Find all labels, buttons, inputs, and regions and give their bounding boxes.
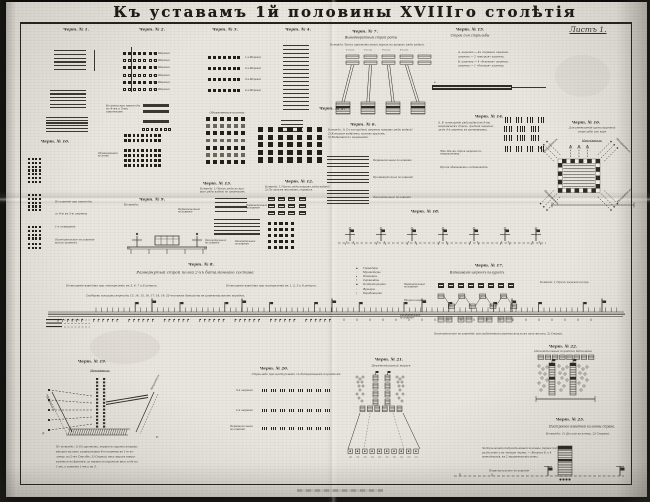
- formation-bar-row: [283, 81, 309, 82]
- soldier-grid-cell: [206, 160, 210, 164]
- soldier-grid-cell: [234, 117, 238, 121]
- soldier-grid-cell: [241, 146, 245, 150]
- firing-mark: [302, 427, 303, 430]
- formation-bar-row: [283, 73, 309, 74]
- figure-heading: Черт. № 8.: [188, 262, 214, 266]
- soldier-grid-cell: [32, 173, 34, 175]
- platoon-block: [438, 283, 444, 288]
- soldier-grid-cell: [158, 154, 161, 157]
- formation-bar-row: [283, 77, 309, 78]
- soldier-grid-cell: [124, 149, 127, 152]
- bracket-line: [131, 47, 132, 92]
- soldier-grid-cell: [158, 159, 161, 162]
- firing-mark: [275, 427, 276, 430]
- caption-text: Обыкновенная колонна: [98, 152, 122, 158]
- svg-text:Непріятель: Непріятель: [543, 188, 560, 205]
- figure-heading: Черт. № 3.: [212, 27, 238, 31]
- soldier-square: [233, 67, 236, 70]
- platoon-block: [468, 283, 474, 288]
- file-stroke: [521, 146, 522, 152]
- soldier-grid-cell: [274, 234, 277, 237]
- soldier-square: [133, 66, 136, 69]
- soldier-grid-cell: [158, 134, 161, 137]
- soldier-grid-cell: [287, 142, 292, 147]
- caption-line: ваго ряды вздвой по шеренгамъ.: [200, 190, 245, 193]
- figure-heading: Черт. № 22.: [549, 344, 578, 348]
- firing-mark: [273, 427, 274, 430]
- soldier-grid-cell: [128, 164, 131, 167]
- soldier-square: [143, 52, 146, 55]
- firing-mark: [266, 409, 267, 412]
- caption-text-block: Команда: 1) Съ площадной шеренги направо…: [328, 128, 413, 139]
- caption-text: Промежуточное положеніе: [373, 176, 413, 179]
- platoon-block: [268, 211, 275, 215]
- soldier-square: [208, 56, 211, 59]
- soldier-grid-cell: [28, 247, 30, 249]
- soldier-grid-cell: [39, 198, 41, 200]
- trees-diagram: [486, 354, 604, 404]
- svg-text:Д.: Д.: [41, 431, 45, 435]
- soldier-grid-cell: [28, 173, 30, 175]
- soldier-grid-cell: [28, 181, 30, 183]
- soldier-grid-cell: [279, 222, 282, 225]
- soldier-grid-cell: [28, 198, 30, 200]
- soldier-grid-cell: [39, 230, 41, 232]
- caption-text: Развернутый строй полка 2-хъ баталіоннаг…: [136, 270, 253, 274]
- solid-bar: [143, 104, 169, 107]
- soldier-grid-cell: [39, 181, 41, 183]
- soldier-grid-cell: [234, 153, 238, 157]
- caption-text: Непріятель: [90, 369, 109, 372]
- caption-text: 1-я Шеренга: [153, 52, 170, 55]
- soldier-square: [218, 67, 221, 70]
- firing-mark: [273, 389, 274, 392]
- soldier-grid-cell: [141, 134, 144, 137]
- soldier-grid-cell: [268, 135, 273, 140]
- soldier-grid-cell: [268, 127, 273, 132]
- soldier-grid-cell: [268, 150, 273, 155]
- firing-mark: [271, 389, 272, 392]
- soldier-grid-cell: [258, 157, 263, 162]
- soldier-grid-cell: [278, 142, 283, 147]
- soldier-grid-cell: [220, 146, 224, 150]
- file-stroke: [535, 126, 536, 132]
- formation-bar-row: [215, 211, 247, 212]
- caption-text: Окончательное положеніе: [400, 314, 434, 319]
- soldier-square: [128, 52, 131, 55]
- soldier-grid-cell: [154, 154, 157, 157]
- soldier-square: [228, 56, 231, 59]
- platoon-block: [498, 283, 504, 288]
- soldier-square: [213, 67, 216, 70]
- soldier-grid-cell: [35, 162, 37, 164]
- soldier-grid-cell: [32, 237, 34, 239]
- soldier-grid-cell: [128, 139, 131, 142]
- figure-heading: Черт. № 16.: [572, 120, 601, 124]
- caption-text: 3-я Шеренга: [245, 78, 261, 81]
- soldier-grid-cell: [141, 139, 144, 142]
- soldier-grid-cell: [227, 131, 231, 135]
- soldier-square: [143, 59, 146, 62]
- firing-mark: [275, 409, 276, 412]
- caption-text: Эти №№-ми строя шеренги по старшинству.: [440, 150, 490, 156]
- soldier-grid-cell: [297, 135, 302, 140]
- soldier-grid-cell: [287, 157, 292, 162]
- firing-mark: [293, 409, 294, 412]
- soldier-grid-cell: [28, 169, 30, 171]
- file-stroke: [531, 135, 532, 141]
- soldier-grid-cell: [39, 243, 41, 245]
- file-stroke: [538, 126, 539, 132]
- firing-mark: [298, 409, 299, 412]
- soldier-grid-cell: [146, 134, 149, 137]
- soldier-square: [142, 128, 145, 131]
- caption-text: Выводворотный строй роты: [345, 36, 397, 40]
- soldier-square: [149, 59, 152, 62]
- soldier-grid-cell: [206, 124, 210, 128]
- soldier-grid-cell: [35, 177, 37, 179]
- caption-text: 5-я Шеренга: [153, 81, 170, 84]
- file-stroke: [510, 117, 511, 123]
- firing-mark: [282, 389, 283, 392]
- figure-heading: Черт. № 18.: [411, 209, 440, 213]
- caption-text: Окончательный порядокъ баталіона: [534, 350, 592, 353]
- soldier-square: [213, 78, 216, 81]
- file-stroke: [522, 135, 523, 141]
- firing-mark: [284, 409, 285, 412]
- formation-bar-row: [283, 101, 309, 102]
- caption-text: Команда: Чрезъ церемоніальный маршъ на п…: [330, 43, 425, 46]
- soldier-grid-cell: [297, 127, 302, 132]
- soldier-grid-cell: [287, 127, 292, 132]
- soldier-square: [143, 81, 146, 84]
- formation-bar-row: [214, 219, 260, 220]
- crossline-diagram: [338, 226, 546, 252]
- firing-mark: [266, 389, 267, 392]
- printer-imprint: [297, 489, 383, 492]
- caption-text-block: А. Б. помѣщеніе ряда вздвой въ 6-тишерен…: [438, 121, 494, 131]
- soldier-grid-cell: [28, 177, 30, 179]
- caption-text-block: Команда: 1) Чрезъ ряды на пра-ваго ряды …: [200, 187, 245, 194]
- band-diagram: [46, 298, 628, 332]
- soldier-square: [237, 67, 240, 70]
- soldier-grid-cell: [146, 149, 149, 152]
- firing-mark: [298, 389, 299, 392]
- soldier-grid-cell: [128, 154, 131, 157]
- formation-bar-row: [327, 159, 369, 160]
- bracket-line: [94, 50, 95, 71]
- file-stroke: [532, 146, 533, 152]
- soldier-square: [160, 128, 163, 131]
- soldier-grid-cell: [28, 234, 30, 236]
- soldier-grid-cell: [234, 160, 238, 164]
- firing-mark: [291, 427, 292, 430]
- soldier-grid-cell: [35, 205, 37, 207]
- formation-bar-row: [283, 65, 309, 66]
- figure-heading: Черт. № 2.: [139, 27, 165, 31]
- soldier-square: [128, 66, 131, 69]
- caption-text: 2-я шеренга: [236, 409, 253, 412]
- soldier-grid-cell: [278, 135, 283, 140]
- soldier-grid-cell: [35, 226, 37, 228]
- soldier-square: [151, 128, 154, 131]
- soldier-grid-cell: [28, 205, 30, 207]
- soldier-grid-cell: [274, 228, 277, 231]
- soldier-grid-cell: [307, 157, 312, 162]
- soldier-grid-cell: [285, 234, 288, 237]
- caption-text: а.: [434, 81, 436, 84]
- soldier-grid-cell: [307, 142, 312, 147]
- formation-bar-row: [54, 61, 86, 62]
- soldier-grid-cell: [268, 157, 273, 162]
- soldier-grid-cell: [154, 159, 157, 162]
- formation-bar-row: [214, 233, 260, 234]
- soldier-square: [213, 56, 216, 59]
- soldier-grid-cell: [317, 142, 322, 147]
- soldier-grid-cell: [32, 177, 34, 179]
- soldier-grid-cell: [133, 134, 136, 137]
- soldier-square: [133, 52, 136, 55]
- file-stroke: [506, 126, 507, 132]
- soldier-square: [168, 128, 171, 131]
- soldier-grid-cell: [158, 164, 161, 167]
- formation-bar-row: [283, 89, 309, 90]
- firing-mark: [316, 427, 317, 430]
- soldier-grid-cell: [35, 181, 37, 183]
- formation-bar-row: [54, 65, 86, 66]
- firing-mark: [280, 409, 281, 412]
- soldier-grid-cell: [39, 234, 41, 236]
- soldier-grid-cell: [291, 246, 294, 249]
- bridge-diagram: [127, 228, 207, 255]
- soldier-square: [133, 88, 136, 91]
- platoon-block: [288, 211, 295, 215]
- firing-mark: [262, 427, 263, 430]
- figure-heading: Черт. № 19.: [78, 359, 107, 363]
- formation-bar-row: [327, 190, 369, 191]
- soldier-grid-cell: [39, 177, 41, 179]
- file-stroke: [518, 146, 519, 152]
- soldier-square: [218, 89, 221, 92]
- soldier-grid-cell: [137, 164, 140, 167]
- formation-bar-row: [283, 105, 309, 106]
- formation-bar-row: [46, 125, 88, 126]
- soldier-grid-cell: [220, 131, 224, 135]
- platoon-block: [488, 283, 494, 288]
- firing-mark: [300, 409, 301, 412]
- soldier-grid-cell: [291, 234, 294, 237]
- soldier-grid-cell: [307, 127, 312, 132]
- soldier-square: [233, 89, 236, 92]
- figure-heading: Черт. № 20.: [260, 366, 289, 370]
- soldier-grid-cell: [227, 139, 231, 143]
- firing-mark: [280, 427, 281, 430]
- file-stroke: [507, 146, 508, 152]
- soldier-grid-cell: [32, 202, 34, 204]
- soldier-grid-cell: [35, 173, 37, 175]
- caption-text: 1-я Шеренга: [245, 56, 261, 59]
- soldier-grid-cell: [32, 162, 34, 164]
- formation-bar-row: [283, 69, 309, 70]
- firing-mark: [289, 409, 290, 412]
- legend-symbol: |: [356, 292, 357, 295]
- svg-text:Непріятель: Непріятель: [615, 187, 632, 204]
- soldier-grid-cell: [268, 246, 271, 249]
- file-stroke: [535, 135, 536, 141]
- soldier-grid-cell: [39, 162, 41, 164]
- firing-mark: [318, 409, 319, 412]
- firing-mark: [325, 409, 326, 412]
- soldier-grid-cell: [35, 234, 37, 236]
- file-stroke: [507, 117, 508, 123]
- kare-diagram: НепріятельНепріятельНепріятельНепріятель: [544, 131, 644, 209]
- soldier-grid-cell: [220, 153, 224, 157]
- svg-text:Е.: Е.: [155, 435, 159, 439]
- legend-label: Фурьеры: [363, 288, 375, 291]
- soldier-grid-cell: [39, 202, 41, 204]
- soldier-grid-cell: [213, 153, 217, 157]
- firing-mark: [300, 427, 301, 430]
- soldier-square: [149, 74, 152, 77]
- file-stroke: [533, 126, 534, 132]
- firing-mark: [262, 409, 263, 412]
- firing-mark: [329, 409, 330, 412]
- soldier-grid-cell: [258, 127, 263, 132]
- soldier-square: [208, 78, 211, 81]
- soldier-grid-cell: [35, 169, 37, 171]
- firing-mark: [280, 389, 281, 392]
- file-stroke: [521, 117, 522, 123]
- legend-symbol: ◦: [356, 271, 357, 274]
- soldier-grid-cell: [146, 159, 149, 162]
- firing-mark: [309, 409, 310, 412]
- figure-heading: Черт. № 17.: [475, 263, 504, 267]
- file-stroke: [543, 117, 544, 123]
- soldier-grid-cell: [158, 149, 161, 152]
- caption-text: Окончательное положеніе): всѣ вздвоенныя…: [434, 332, 563, 335]
- soldier-grid-cell: [206, 131, 210, 135]
- firing-mark: [291, 389, 292, 392]
- firing-mark: [262, 389, 263, 392]
- formation-bar-row: [50, 104, 86, 105]
- soldier-grid-cell: [154, 139, 157, 142]
- file-stroke: [509, 135, 510, 141]
- caption-text: 4-й взв.: [400, 49, 409, 51]
- formation-bar-row: [215, 202, 247, 203]
- soldier-square: [138, 81, 141, 84]
- caption-text: Скобками показаны переходы 13, 14, 15, 1…: [86, 294, 245, 297]
- caption-text: Первоначальное положеніе: [373, 159, 412, 162]
- formation-bar-row: [214, 226, 260, 227]
- formation-bar-row: [46, 122, 88, 123]
- firing-mark: [266, 427, 267, 430]
- soldier-grid-cell: [32, 226, 34, 228]
- soldier-square: [123, 66, 126, 69]
- soldier-grid-cell: [227, 160, 231, 164]
- soldier-grid-cell: [32, 169, 34, 171]
- soldier-square: [138, 66, 141, 69]
- firing-mark: [320, 389, 321, 392]
- firing-mark: [309, 427, 310, 430]
- soldier-grid-cell: [158, 139, 161, 142]
- formation-bar-row: [327, 179, 369, 180]
- formation-bar-row: [327, 197, 369, 198]
- file-stroke: [538, 135, 539, 141]
- caption-text: Прочія обыкновенно составляютъ.: [440, 166, 490, 169]
- formation-bar-row: [54, 58, 86, 59]
- soldier-grid-cell: [258, 142, 263, 147]
- firing-mark: [271, 427, 272, 430]
- file-stroke: [511, 126, 512, 132]
- firing-mark: [316, 409, 317, 412]
- figure-heading: Черт. № 12.: [285, 179, 314, 183]
- soldier-grid-cell: [154, 164, 157, 167]
- svg-text:Непріятель: Непріятель: [149, 373, 161, 391]
- formation-bar-row: [281, 124, 303, 125]
- formation-bar-row: [281, 120, 303, 121]
- soldier-square: [143, 66, 146, 69]
- soldier-grid-cell: [279, 228, 282, 231]
- firing-mark: [289, 427, 290, 430]
- soldier-grid-cell: [268, 240, 271, 243]
- firing-mark: [284, 427, 285, 430]
- legend-symbol: †: [356, 279, 357, 282]
- legend-label: Подпрапорщики: [363, 283, 386, 286]
- formation-bar-row: [46, 117, 88, 118]
- firing-mark: [275, 389, 276, 392]
- caption-text-block: А, шеренги — въ «первыя» шеренги,шеренги…: [458, 50, 509, 68]
- formation-bar-row: [327, 163, 369, 164]
- soldier-grid-cell: [141, 154, 144, 157]
- formation-bar-row: [283, 57, 309, 58]
- caption-text: Помѣщеніе взводовъ при наступленіи въ 1,…: [226, 284, 317, 287]
- firing-mark: [264, 427, 265, 430]
- soldier-grid-cell: [137, 159, 140, 162]
- soldier-square: [228, 89, 231, 92]
- soldier-square: [233, 56, 236, 59]
- soldier-grid-cell: [133, 154, 136, 157]
- soldier-square: [149, 52, 152, 55]
- file-stroke: [533, 135, 534, 141]
- soldier-grid-cell: [258, 150, 263, 155]
- firing-mark: [284, 389, 285, 392]
- soldier-square: [138, 74, 141, 77]
- soldier-grid-cell: [307, 150, 312, 155]
- soldier-grid-cell: [227, 153, 231, 157]
- soldier-square: [237, 56, 240, 59]
- soldier-square: [133, 81, 136, 84]
- soldier-grid-cell: [128, 159, 131, 162]
- file-stroke: [531, 126, 532, 132]
- soldier-grid-cell: [124, 134, 127, 137]
- soldier-grid-cell: [28, 162, 30, 164]
- soldier-grid-cell: [279, 246, 282, 249]
- soldier-square: [143, 88, 146, 91]
- hang-diagram: [308, 53, 436, 117]
- firing-mark: [307, 409, 308, 412]
- file-stroke: [505, 117, 506, 123]
- firing-mark: [325, 427, 326, 430]
- formation-bar-row: [283, 49, 309, 50]
- firing-mark: [311, 389, 312, 392]
- soldier-grid-cell: [35, 166, 37, 168]
- platoon-block: [448, 283, 454, 288]
- formation-bar-row: [54, 50, 86, 51]
- soldier-grid-cell: [39, 173, 41, 175]
- soldier-grid-cell: [213, 117, 217, 121]
- soldier-grid-cell: [133, 159, 136, 162]
- platoon-block: [278, 197, 285, 201]
